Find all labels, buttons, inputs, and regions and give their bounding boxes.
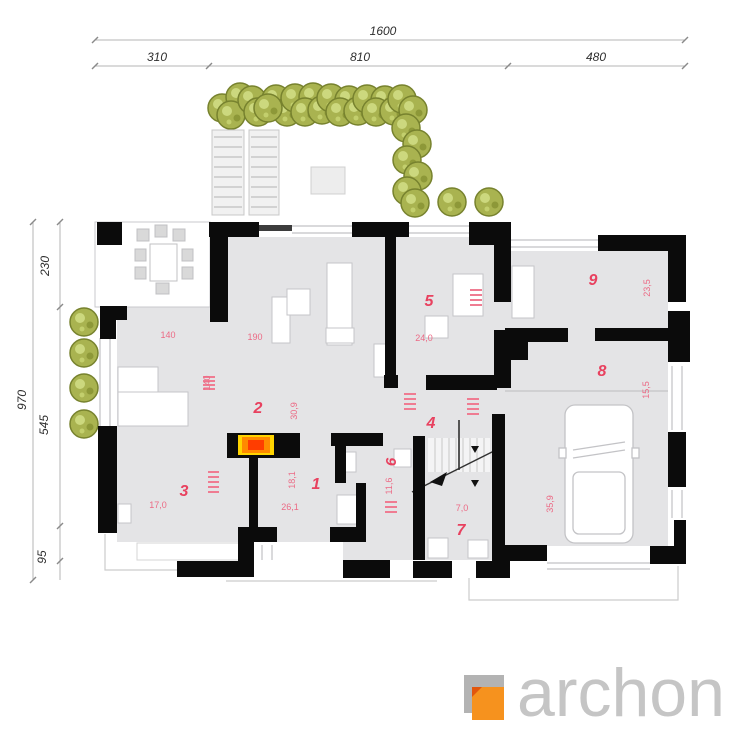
- svg-text:1: 1: [312, 476, 321, 493]
- svg-text:3: 3: [180, 483, 189, 500]
- svg-text:archon: archon: [517, 655, 725, 731]
- svg-text:230: 230: [38, 256, 52, 277]
- svg-text:9: 9: [589, 272, 598, 289]
- svg-text:480: 480: [586, 50, 606, 64]
- svg-text:810: 810: [350, 50, 370, 64]
- svg-text:24,0: 24,0: [415, 333, 433, 343]
- svg-text:18,1: 18,1: [287, 471, 297, 489]
- svg-text:2: 2: [253, 400, 263, 417]
- svg-text:35,9: 35,9: [545, 495, 555, 513]
- svg-text:6: 6: [383, 457, 400, 466]
- svg-text:310: 310: [147, 50, 167, 64]
- svg-text:23,5: 23,5: [642, 279, 652, 297]
- svg-text:30,9: 30,9: [289, 402, 299, 420]
- svg-text:7,0: 7,0: [456, 503, 469, 513]
- svg-text:4: 4: [426, 415, 436, 432]
- svg-text:8: 8: [598, 363, 607, 380]
- svg-text:26,1: 26,1: [281, 502, 299, 512]
- svg-text:545: 545: [37, 415, 51, 435]
- svg-text:7: 7: [457, 522, 467, 539]
- svg-text:11,6: 11,6: [384, 478, 394, 495]
- svg-text:15,5: 15,5: [641, 381, 651, 399]
- svg-text:140: 140: [160, 330, 175, 340]
- svg-text:1600: 1600: [370, 24, 397, 38]
- svg-text:140: 140: [202, 375, 212, 390]
- svg-text:190: 190: [247, 332, 262, 342]
- svg-text:95: 95: [35, 550, 49, 564]
- svg-text:17,0: 17,0: [149, 500, 167, 510]
- svg-text:5: 5: [425, 293, 435, 310]
- svg-text:970: 970: [15, 390, 29, 410]
